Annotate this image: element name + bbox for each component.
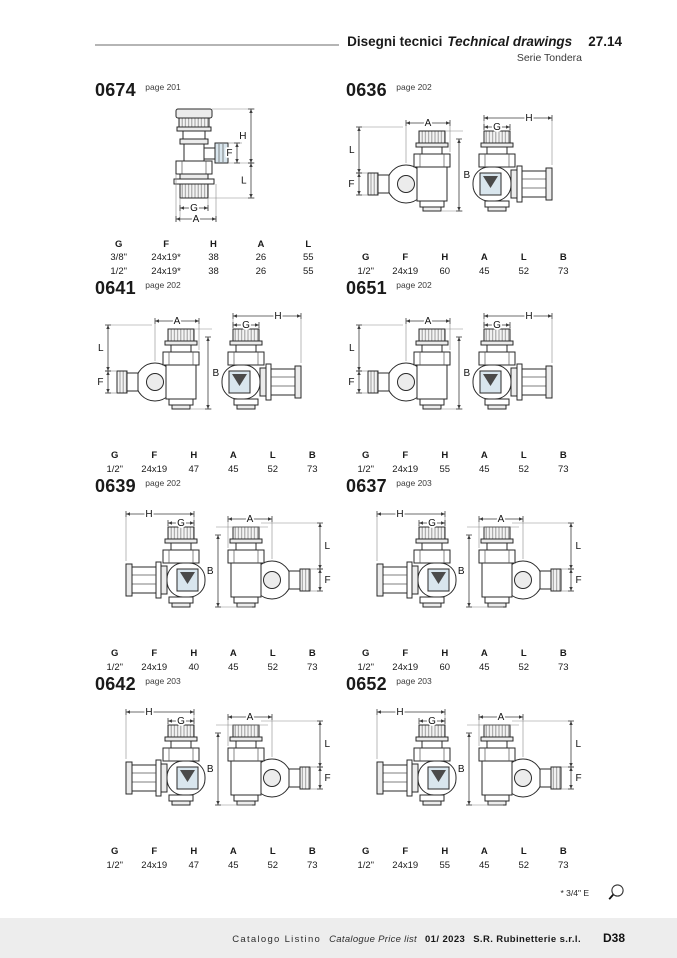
page-reference: page 202 (145, 280, 180, 290)
product-title: 0642 page 203 (95, 674, 332, 698)
table-cell: 24x19 (386, 859, 426, 873)
dimension-line: L (240, 163, 253, 198)
dimension-line: L (568, 523, 582, 569)
table-header: A (465, 845, 505, 859)
series-name: Serie Tondera (95, 52, 622, 64)
product-section-0639: 0639 page 202 H G A (95, 476, 332, 674)
dim-label: G (177, 518, 185, 529)
dimension-line: L (568, 721, 582, 767)
table-cell: 73 (544, 265, 584, 279)
table-header: A (237, 238, 284, 252)
table-header: L (504, 845, 544, 859)
table-header: A (465, 251, 505, 265)
valve-drawing-pair: A L F B H G (347, 113, 582, 243)
table-cell: 24x19 (135, 661, 175, 675)
dim-label: L (325, 739, 331, 750)
product-code: 0636 (346, 80, 387, 100)
table-header: A (465, 449, 505, 463)
dimension-line: F (317, 569, 331, 591)
dim-label: A (425, 118, 432, 129)
dimension-table: GFHALB 1/2"24x1947455273 (95, 449, 332, 476)
table-header: G (346, 449, 386, 463)
table-header: F (386, 251, 426, 265)
table-cell: 40 (174, 661, 214, 675)
table-cell: 47 (174, 463, 214, 477)
product-section-0641: 0641 page 202 A L F B (95, 278, 332, 476)
dim-label: B (213, 368, 220, 379)
technical-drawing: A L F B H G (346, 302, 583, 449)
table-cell: 24x19 (135, 859, 175, 873)
dim-label: A (498, 712, 505, 723)
header-title: Disegni tecniciTechnical drawings (347, 34, 572, 49)
table-header: G (346, 647, 386, 661)
product-title: 0652 page 203 (346, 674, 583, 698)
dimension-line: H (239, 109, 254, 163)
table-header: F (135, 449, 175, 463)
dimension-line: B (456, 337, 471, 409)
table-header: B (293, 845, 333, 859)
dimension-line: F (568, 569, 582, 591)
table-header: G (95, 238, 142, 252)
dim-label: H (145, 707, 152, 718)
table-header: F (386, 647, 426, 661)
footer-company: S.R. Rubinetterie s.r.l. (473, 934, 581, 945)
valve-drawing-pair: H G A B L (96, 707, 331, 837)
table-cell: 45 (465, 463, 505, 477)
table-cell: 52 (253, 661, 293, 675)
table-cell: 1/2" (346, 265, 386, 279)
dimension-line: F (317, 767, 331, 789)
dimension-table: GFHALB 1/2"24x1947455273 (95, 845, 332, 872)
dimension-line: A (176, 214, 216, 225)
table-header: H (425, 251, 465, 265)
table-header: F (142, 238, 189, 252)
table-cell: 45 (465, 859, 505, 873)
dimension-line: B (207, 535, 221, 607)
dimension-line: A (155, 316, 199, 327)
table-cell: 73 (544, 661, 584, 675)
technical-drawing: A L F B H G (346, 104, 583, 251)
table-cell: 52 (504, 661, 544, 675)
dimension-line: A (479, 514, 523, 525)
valve-drawing-vertical: H F L G A (139, 105, 289, 237)
dim-label: H (396, 509, 403, 520)
product-title: 0639 page 202 (95, 476, 332, 500)
table-cell: 1/2" (346, 859, 386, 873)
table-header: L (253, 845, 293, 859)
dim-label: A (247, 712, 254, 723)
dim-label: L (349, 343, 355, 354)
dim-label: F (325, 575, 331, 586)
product-title: 0651 page 202 (346, 278, 583, 302)
table-header: H (174, 647, 214, 661)
page-reference: page 201 (145, 82, 180, 92)
dimension-line: F (97, 371, 111, 393)
table-header: L (504, 647, 544, 661)
dim-label: G (177, 716, 185, 727)
dim-label: G (428, 518, 436, 529)
dim-label: B (464, 170, 471, 181)
table-cell: 45 (214, 859, 254, 873)
table-header: A (214, 845, 254, 859)
dim-label: H (239, 131, 246, 142)
table-header: G (346, 845, 386, 859)
table-cell: 52 (504, 265, 544, 279)
table-cell: 1/2" (95, 661, 135, 675)
table-cell: 55 (425, 463, 465, 477)
dim-label: L (349, 145, 355, 156)
table-cell: 24x19 (386, 265, 426, 279)
product-section-0651: 0651 page 202 A L F B (346, 278, 583, 476)
footer-page-code: D38 (603, 931, 625, 945)
dim-label: H (145, 509, 152, 520)
dim-label: A (425, 316, 432, 327)
dimension-table: GFHALB 1/2"24x1955455273 (346, 845, 583, 872)
dimension-line: L (317, 523, 331, 569)
table-cell: 45 (214, 661, 254, 675)
product-title: 0636 page 202 (346, 80, 583, 104)
table-cell: 24x19 (386, 463, 426, 477)
dimension-line: L (98, 325, 111, 371)
table-cell: 55 (285, 251, 332, 265)
table-cell: 1/2" (95, 463, 135, 477)
table-header: H (174, 449, 214, 463)
product-code: 0651 (346, 278, 387, 298)
table-header: A (214, 647, 254, 661)
dim-label: F (226, 148, 232, 159)
dim-label: F (348, 179, 354, 190)
table-header: L (253, 647, 293, 661)
table-header: B (544, 647, 584, 661)
table-header: A (465, 647, 505, 661)
table-cell: 73 (544, 463, 584, 477)
dim-label: G (493, 122, 501, 133)
dim-label: L (325, 541, 331, 552)
table-header: H (174, 845, 214, 859)
footer-label-it: Catalogo Listino (232, 934, 321, 945)
table-cell: 47 (174, 859, 214, 873)
table-cell: 55 (425, 859, 465, 873)
table-header: B (544, 449, 584, 463)
dim-label: F (576, 575, 582, 586)
dimension-line: A (406, 316, 450, 327)
dimension-table: GFHALB 1/2"24x1960455273 (346, 251, 583, 278)
dimension-table: GFHAL 3/8"24x19*3826551/2"24x19*382655 (95, 238, 332, 279)
dim-label: H (525, 311, 532, 322)
dim-label: A (192, 214, 199, 225)
product-section-0642: 0642 page 203 H G A (95, 674, 332, 872)
product-sections-grid: 0674 page 201 H F L G A (95, 80, 583, 872)
dimension-line: L (349, 127, 362, 173)
dim-label: B (207, 566, 214, 577)
dimension-table: GFHALB 1/2"24x1955455273 (346, 449, 583, 476)
product-title: 0637 page 203 (346, 476, 583, 500)
dimension-line: B (207, 733, 221, 805)
dim-label: A (247, 514, 254, 525)
table-cell: 73 (293, 661, 333, 675)
dim-label: G (242, 320, 250, 331)
dim-label: H (396, 707, 403, 718)
valve-drawing-pair: A L F B H G (347, 311, 582, 441)
table-header: F (135, 647, 175, 661)
product-code: 0641 (95, 278, 136, 298)
table-header: G (95, 449, 135, 463)
dim-label: H (274, 311, 281, 322)
table-header: H (425, 845, 465, 859)
table-cell: 52 (504, 859, 544, 873)
valve-drawing-pair: H G A B L (96, 509, 331, 639)
dimension-line: A (406, 118, 450, 129)
table-header: H (425, 449, 465, 463)
table-header: F (386, 449, 426, 463)
dim-label: F (576, 773, 582, 784)
table-header: L (504, 449, 544, 463)
table-header: H (190, 238, 237, 252)
section-number: 27.14 (588, 34, 622, 49)
footer-date: 01/ 2023 (425, 934, 465, 945)
technical-drawing: H G A B L (346, 500, 583, 647)
dim-label: G (190, 203, 198, 214)
dimension-table: GFHALB 1/2"24x1960455273 (346, 647, 583, 674)
dim-label: L (240, 175, 246, 186)
table-cell: 73 (293, 463, 333, 477)
product-section-0674: 0674 page 201 H F L G A (95, 80, 332, 278)
table-header: F (386, 845, 426, 859)
table-cell: 55 (285, 265, 332, 279)
table-cell: 26 (237, 251, 284, 265)
footnote: * 3/4" E (560, 883, 627, 903)
table-cell: 52 (504, 463, 544, 477)
dimension-line: B (458, 733, 472, 805)
table-header: L (285, 238, 332, 252)
table-cell: 3/8" (95, 251, 142, 265)
table-header: F (135, 845, 175, 859)
dim-label: F (348, 377, 354, 388)
product-code: 0674 (95, 80, 136, 100)
dimension-line: F (348, 371, 362, 393)
table-header: G (95, 845, 135, 859)
footer-line: Catalogo Listino Catalogue Price list 01… (232, 931, 625, 945)
dim-label: A (174, 316, 181, 327)
table-cell: 24x19* (142, 265, 189, 279)
table-cell: 1/2" (346, 661, 386, 675)
dim-label: G (428, 716, 436, 727)
product-code: 0652 (346, 674, 387, 694)
dim-label: L (98, 343, 104, 354)
dimension-line: B (205, 337, 220, 409)
table-cell: 45 (214, 463, 254, 477)
dimension-line: F (568, 767, 582, 789)
footer-label-en: Catalogue Price list (329, 934, 417, 945)
dim-label: L (576, 739, 582, 750)
dimension-line: G (180, 203, 208, 214)
table-cell: 73 (544, 859, 584, 873)
dim-label: B (458, 764, 465, 775)
technical-drawing: H G A B L (95, 500, 332, 647)
dim-label: G (493, 320, 501, 331)
dim-label: B (458, 566, 465, 577)
valve-drawing-pair: A L F B H G (96, 311, 331, 441)
table-header: B (293, 647, 333, 661)
table-header: A (214, 449, 254, 463)
table-header: B (544, 845, 584, 859)
table-header: H (425, 647, 465, 661)
table-cell: 1/2" (95, 265, 142, 279)
technical-drawing: A L F B H G (95, 302, 332, 449)
dimension-line: B (456, 139, 471, 211)
dimension-line: A (479, 712, 523, 723)
page-reference: page 202 (145, 478, 180, 488)
table-cell: 38 (190, 265, 237, 279)
table-cell: 24x19 (386, 661, 426, 675)
dim-label: L (576, 541, 582, 552)
table-cell: 52 (253, 463, 293, 477)
technical-drawing: H G A B L (95, 698, 332, 845)
dim-label: H (525, 113, 532, 124)
table-header: B (293, 449, 333, 463)
table-cell: 45 (465, 661, 505, 675)
product-code: 0639 (95, 476, 136, 496)
product-section-0636: 0636 page 202 A L F B (346, 80, 583, 278)
page-reference: page 202 (396, 280, 431, 290)
page-reference: page 203 (396, 676, 431, 686)
table-header: B (544, 251, 584, 265)
header-title-en: Technical drawings (447, 34, 572, 49)
table-header: G (346, 251, 386, 265)
page-header: Disegni tecniciTechnical drawings 27.14 … (95, 34, 622, 64)
magnifier-icon[interactable] (605, 883, 627, 903)
table-cell: 26 (237, 265, 284, 279)
product-section-0637: 0637 page 203 H G A (346, 476, 583, 674)
product-code: 0642 (95, 674, 136, 694)
product-title: 0674 page 201 (95, 80, 332, 104)
table-cell: 24x19* (142, 251, 189, 265)
dimension-table: GFHALB 1/2"24x1940455273 (95, 647, 332, 674)
table-cell: 1/2" (346, 463, 386, 477)
table-cell: 24x19 (135, 463, 175, 477)
page-reference: page 203 (145, 676, 180, 686)
technical-drawing: H F L G A (95, 104, 332, 238)
table-cell: 60 (425, 661, 465, 675)
dimension-line: A (228, 712, 272, 723)
table-cell: 1/2" (95, 859, 135, 873)
product-code: 0637 (346, 476, 387, 496)
header-title-it: Disegni tecnici (347, 34, 442, 49)
table-cell: 73 (293, 859, 333, 873)
dim-label: B (207, 764, 214, 775)
dimension-line: L (349, 325, 362, 371)
dimension-line: B (458, 535, 472, 607)
table-header: G (95, 647, 135, 661)
table-header: L (253, 449, 293, 463)
table-cell: 45 (465, 265, 505, 279)
table-cell: 60 (425, 265, 465, 279)
header-rule (95, 44, 339, 46)
valve-drawing-pair: H G A B L (347, 509, 582, 639)
product-title: 0641 page 202 (95, 278, 332, 302)
dimension-line: A (228, 514, 272, 525)
technical-drawing: H G A B L (346, 698, 583, 845)
product-section-0652: 0652 page 203 H G A (346, 674, 583, 872)
dim-label: F (325, 773, 331, 784)
dimension-line: L (317, 721, 331, 767)
footnote-text: * 3/4" E (560, 888, 589, 898)
dimension-line: F (348, 173, 362, 195)
dim-label: B (464, 368, 471, 379)
dim-label: F (97, 377, 103, 388)
table-cell: 52 (253, 859, 293, 873)
page-reference: page 202 (396, 82, 431, 92)
valve-drawing-pair: H G A B L (347, 707, 582, 837)
page-reference: page 203 (396, 478, 431, 488)
table-header: L (504, 251, 544, 265)
table-cell: 38 (190, 251, 237, 265)
dim-label: A (498, 514, 505, 525)
